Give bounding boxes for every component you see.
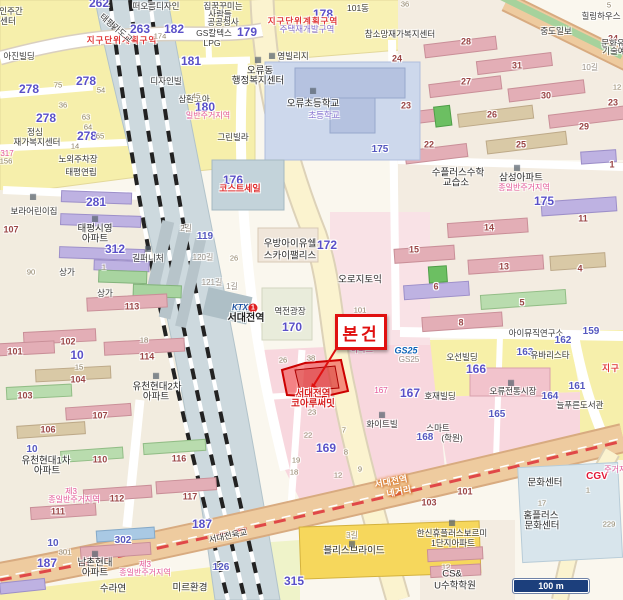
map-label: GS칼텍스 (196, 29, 232, 38)
map-label: 아진빌딩 (3, 52, 34, 61)
map-label: 8 (458, 319, 463, 328)
map-label: 121길 (202, 279, 223, 287)
map-label: 문화센터 (525, 521, 560, 531)
map-label: 161 (569, 382, 586, 392)
map-label: 길퍼니처 (132, 254, 163, 263)
map-label: 103 (421, 499, 436, 508)
map-label: 170 (282, 321, 302, 333)
map-label: 태평연립 (65, 168, 96, 177)
map-label: 101 (7, 348, 22, 357)
map-label: 화이트빌 (366, 420, 397, 429)
map-label: 센터 (0, 17, 16, 26)
map-label: 104 (70, 376, 85, 385)
map-label: 오로지토익 (338, 275, 382, 285)
map-label: 31 (512, 62, 522, 71)
map-label: 23 (608, 99, 618, 108)
map-label: 주거지역 (604, 466, 623, 474)
map-label: 36 (59, 101, 67, 109)
building-icon: ▦ (152, 372, 160, 380)
map-label: 정심 (27, 128, 43, 137)
map-label: 18 (140, 336, 148, 344)
map-label: 역전광장 (274, 307, 305, 316)
map-label: 우방아이유쉘 (264, 239, 316, 249)
map-label: 278 (19, 83, 39, 95)
building-icon: ▦ (309, 87, 317, 95)
map-label: 스마트 (426, 424, 449, 433)
map-label: 166 (466, 363, 486, 375)
map-label: 119 (197, 232, 213, 242)
map-label: 179 (237, 26, 257, 38)
map-label: 278 (76, 75, 96, 87)
map-label: (학원) (441, 434, 462, 443)
map-label: 101 (457, 488, 472, 497)
map-label: 229 (603, 520, 616, 528)
map-label: 22 (304, 431, 312, 439)
map-label: 159 (583, 327, 600, 337)
building-icon: ▦ (513, 164, 521, 172)
map-label: 상가 (59, 268, 75, 277)
map-label: 영빌리지 (277, 52, 308, 61)
map-label: 문화센터 (528, 478, 563, 488)
map-label: 187 (37, 557, 57, 569)
map-label: 278 (36, 112, 56, 124)
map-label: 상가 (97, 289, 113, 298)
map-label: 15 (409, 246, 419, 255)
map-label: 코스트세일 (219, 185, 260, 194)
map-canvas[interactable]: 262263지구단위계획구역인주간센터아진빌딩27827827827865543… (0, 0, 623, 600)
map-label: 아파트 (34, 466, 60, 476)
map-label: 힐링하우스 (581, 12, 620, 21)
map-label: 113 (125, 303, 140, 312)
map-label: 26 (230, 254, 238, 262)
map-label: 1길 (226, 283, 238, 291)
map-label: 떠오름디자인 (133, 2, 180, 11)
map-label: 110 (93, 456, 108, 465)
building-icon: ▦ (254, 56, 262, 64)
map-label: 디자인빌 (150, 77, 181, 86)
map-label: 1단지아파트 (431, 539, 475, 548)
map-label: 182 (164, 23, 184, 35)
map-label: 9 (358, 465, 362, 473)
building-icon: ▦ (268, 52, 276, 60)
map-label: 63 (82, 113, 90, 121)
map-label: 재가복지센터 (14, 138, 61, 147)
map-label: 107 (3, 226, 18, 235)
building-icon: ▦ (91, 550, 99, 558)
map-label: 수라연 (100, 584, 126, 594)
map-label: 13 (499, 263, 509, 272)
map-label: 4 (577, 265, 582, 274)
map-label: 187 (192, 518, 212, 530)
map-label: 10 (47, 539, 58, 549)
map-label: 75 (54, 81, 62, 89)
map-label: 301 (59, 548, 72, 556)
map-label: LPG (203, 39, 220, 48)
map-label: 126 (213, 563, 230, 573)
map-label: 175 (372, 145, 389, 155)
map-label: 종일반주거지역 (498, 184, 550, 192)
map-label: 103 (17, 392, 32, 401)
map-label: 11 (578, 215, 588, 224)
map-label: 54 (97, 86, 105, 94)
map-label: 114 (140, 353, 155, 362)
map-label: 오선빌딩 (446, 353, 477, 362)
map-label: 서대전육교 (208, 528, 248, 544)
map-label: 호재빌딩 (424, 392, 455, 401)
building-icon: ▦ (29, 193, 37, 201)
map-label: 14 (484, 224, 494, 233)
map-label: 315 (284, 575, 304, 587)
map-label: 종일반주거지역 (48, 496, 100, 504)
scale-bar-label: 100 m (538, 581, 564, 591)
map-label: 106 (40, 426, 55, 435)
map-label: KTX (232, 304, 248, 312)
map-label: 107 (92, 412, 107, 421)
map-label: 그린빌라 (217, 133, 248, 142)
map-label: 26 (487, 111, 497, 120)
map-label: 15 (75, 363, 83, 371)
map-label: 262 (89, 0, 109, 9)
map-label: CS& (442, 569, 462, 579)
map-label: 27 (461, 78, 471, 87)
map-label: 168 (417, 433, 434, 443)
map-label: 유바리스타 (530, 351, 569, 360)
map-label: 102 (60, 338, 75, 347)
map-label: 1 (609, 161, 614, 170)
map-label: 12 (613, 83, 621, 91)
map-label: 162 (555, 336, 572, 346)
map-label: 중도일보 (540, 27, 571, 36)
map-label: 오류초등학교 (287, 99, 339, 109)
map-label: 24 (392, 55, 402, 64)
map-label: 120길 (193, 254, 214, 262)
map-label: 10 (70, 349, 83, 361)
map-label: 삼성아파트 (499, 173, 543, 183)
map-label: 22 (424, 141, 434, 150)
map-label: 30 (541, 92, 551, 101)
map-label: 281 (86, 196, 106, 208)
map-label: 167 (400, 387, 420, 399)
map-label: 116 (172, 455, 187, 464)
map-label: 101동 (347, 4, 369, 13)
building-icon: ▦ (348, 540, 356, 548)
map-label: 18 (290, 468, 298, 476)
map-label: 112 (110, 495, 125, 504)
map-label: 38 (307, 354, 315, 362)
map-label: 1 (586, 486, 590, 494)
map-label: 7 (342, 426, 346, 434)
map-label: 6 (433, 283, 438, 292)
map-labels-layer: 262263지구단위계획구역인주간센터아진빌딩27827827827865543… (0, 0, 623, 600)
map-label: 111 (51, 508, 65, 517)
building-icon: ▦ (91, 215, 99, 223)
map-label: 10 (26, 445, 37, 455)
map-label: 늘푸른도서관 (557, 401, 604, 410)
map-label: 노외주차장 (58, 155, 97, 164)
map-label: 172 (317, 239, 337, 251)
map-label: U수학학원 (434, 581, 476, 591)
map-label: 90 (27, 268, 35, 276)
map-label: 101 (354, 306, 367, 314)
map-label: 인주간 (0, 7, 23, 16)
map-label: 17 (538, 499, 546, 507)
map-label: 10길 (582, 64, 598, 72)
map-label: 5 (607, 1, 611, 9)
map-label: 일반주거지역 (186, 112, 230, 120)
map-label: 29 (579, 123, 589, 132)
building-icon: ▦ (378, 411, 386, 419)
map-label: 1 (249, 304, 258, 313)
building-icon: ▦ (448, 519, 456, 527)
map-label: 23 (401, 102, 411, 111)
map-label: 스카이팰리스 (264, 251, 316, 261)
map-label: 지구 (602, 364, 620, 373)
map-label: 26 (279, 356, 287, 364)
map-label: 참소망재가복지센터 (365, 30, 435, 39)
map-label: 28 (461, 38, 471, 47)
building-icon: ▦ (144, 245, 152, 253)
map-label: 167 (374, 387, 387, 395)
map-label: 초등학교 (308, 111, 339, 120)
map-label: 종일반주거지역 (119, 569, 171, 577)
map-label: 64 (84, 123, 92, 131)
map-scale-bar: 100 m (512, 578, 590, 594)
map-label: 263 (130, 23, 150, 35)
map-label: GS25 (399, 356, 419, 364)
map-label: 행정복지센터 (232, 76, 284, 86)
subject-property-callout-text: 본건 (342, 320, 379, 345)
map-label: 25 (516, 141, 526, 150)
map-label: 주택재개발구역 (280, 25, 335, 34)
map-label: 169 (316, 442, 336, 454)
map-label: 65 (96, 132, 104, 140)
map-label: 오류전통시장 (490, 387, 537, 396)
building-icon: ▦ (507, 379, 515, 387)
map-label: 312 (105, 243, 125, 255)
map-label: 36 (401, 0, 409, 8)
map-label: 12 (334, 471, 342, 479)
map-label: 네거리 (386, 485, 412, 499)
map-label: 23 (308, 408, 316, 416)
map-label: 한신휴플러스보르미 (417, 529, 487, 538)
map-label: 165 (489, 410, 506, 420)
map-label: 278 (77, 130, 97, 142)
map-label: 공공청사 (207, 18, 238, 27)
map-label: 302 (115, 536, 132, 546)
map-label: 1 (102, 263, 106, 271)
map-label: 156 (0, 157, 12, 165)
map-label: 117 (183, 493, 198, 502)
map-label: 19 (292, 456, 300, 464)
map-label: 181 (181, 55, 201, 67)
map-label: 2길 (180, 225, 192, 233)
map-label: 45 (192, 92, 200, 100)
map-label: 미르환경 (173, 583, 208, 593)
map-label: 보라어린이집 (11, 207, 58, 216)
subject-property-callout[interactable]: 본건 (335, 314, 387, 350)
map-label: 기술예 (602, 47, 623, 56)
map-label: 교습소 (443, 178, 469, 188)
map-label: 8 (344, 448, 348, 456)
map-label: 5 (519, 299, 524, 308)
map-label: 175 (534, 195, 554, 207)
map-label: 14 (71, 142, 79, 150)
map-label: 서대전역 (228, 314, 265, 324)
map-label: 아파트 (82, 568, 108, 578)
map-label: 아파트 (143, 392, 169, 402)
